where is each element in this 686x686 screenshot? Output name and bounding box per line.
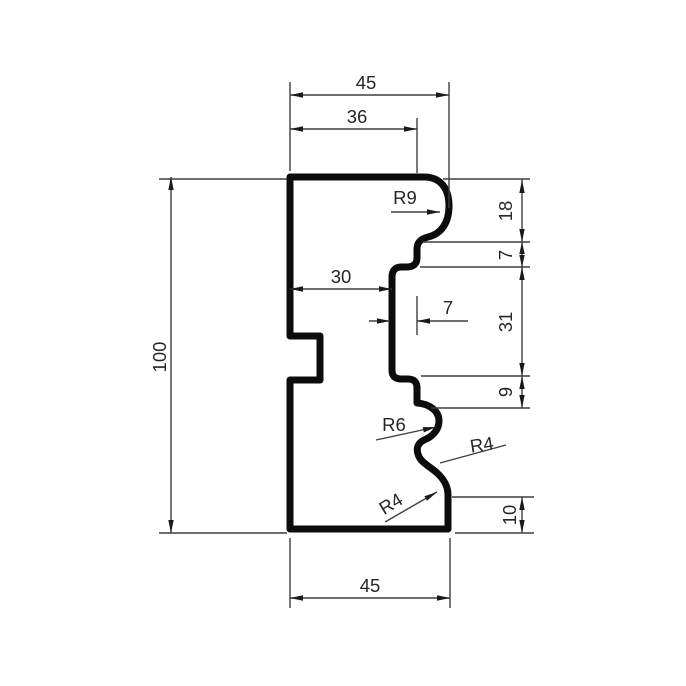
technical-drawing-canvas: 45 36 100 30 7 18 7 [0, 0, 686, 686]
arrowhead-right [437, 595, 450, 600]
radius-nose-R9: R9 [391, 187, 440, 215]
dimension-label: 10 [499, 505, 520, 526]
arrowhead-down [519, 520, 524, 533]
radius-ogee-middle-R4: R4 [440, 432, 506, 463]
dim-top-width: 45 [290, 72, 449, 98]
dim-recess-depth: 7 [369, 297, 468, 324]
dim-right-step: 7 [495, 242, 525, 267]
arrowhead-right [427, 209, 440, 214]
radius-label: R6 [382, 414, 406, 435]
dimension-label: 31 [495, 312, 516, 333]
dim-right-recess: 31 [495, 267, 525, 376]
radius-ogee-bottom-R4: R4 [375, 488, 437, 522]
arrowhead-down [168, 520, 173, 533]
dimension-label: 100 [149, 342, 170, 373]
dimension-label: 30 [331, 266, 352, 287]
arrowhead-diagonal [424, 492, 437, 501]
arrowhead-left [290, 92, 303, 97]
arrowhead-right [377, 318, 390, 323]
arrowhead-down [519, 255, 524, 267]
radius-label: R4 [468, 432, 495, 456]
dimension-label: 36 [347, 106, 368, 127]
dim-right-nose: 18 [495, 179, 525, 408]
arrowhead-right [436, 92, 449, 97]
arrowhead-down [519, 395, 524, 408]
dimension-label: 18 [495, 201, 516, 222]
dimension-label: 7 [495, 250, 516, 260]
radius-label: R9 [393, 187, 417, 208]
arrowhead-right [404, 126, 417, 131]
arrowhead-down [519, 363, 524, 376]
profile-outline [290, 177, 449, 529]
radius-label: R4 [375, 488, 406, 518]
arrowhead-up [519, 242, 524, 254]
dimension-label: 9 [495, 387, 516, 397]
dim-recess-offset: 30 [290, 266, 392, 292]
profile [290, 177, 449, 529]
arrowhead-left [417, 318, 430, 323]
dim-right-below: 9 [495, 376, 525, 408]
dim-bottom-width: 45 [290, 575, 450, 601]
dimension-label: 45 [356, 72, 377, 93]
dim-top-flat: 36 [290, 106, 417, 132]
arrowhead-left [290, 595, 303, 600]
arrowhead-up [519, 267, 524, 280]
drawing-svg: 45 36 100 30 7 18 7 [0, 0, 686, 686]
arrowhead-down [519, 229, 524, 242]
arrowhead-up [519, 376, 524, 389]
arrowhead-up [519, 180, 524, 193]
dim-overall-height: 100 [149, 177, 174, 533]
dim-bottom-lip: 10 [499, 497, 525, 533]
arrowhead-left [290, 126, 303, 131]
dimension-label: 7 [443, 297, 453, 318]
dimension-label: 45 [360, 575, 381, 596]
arrowhead-up [519, 497, 524, 510]
